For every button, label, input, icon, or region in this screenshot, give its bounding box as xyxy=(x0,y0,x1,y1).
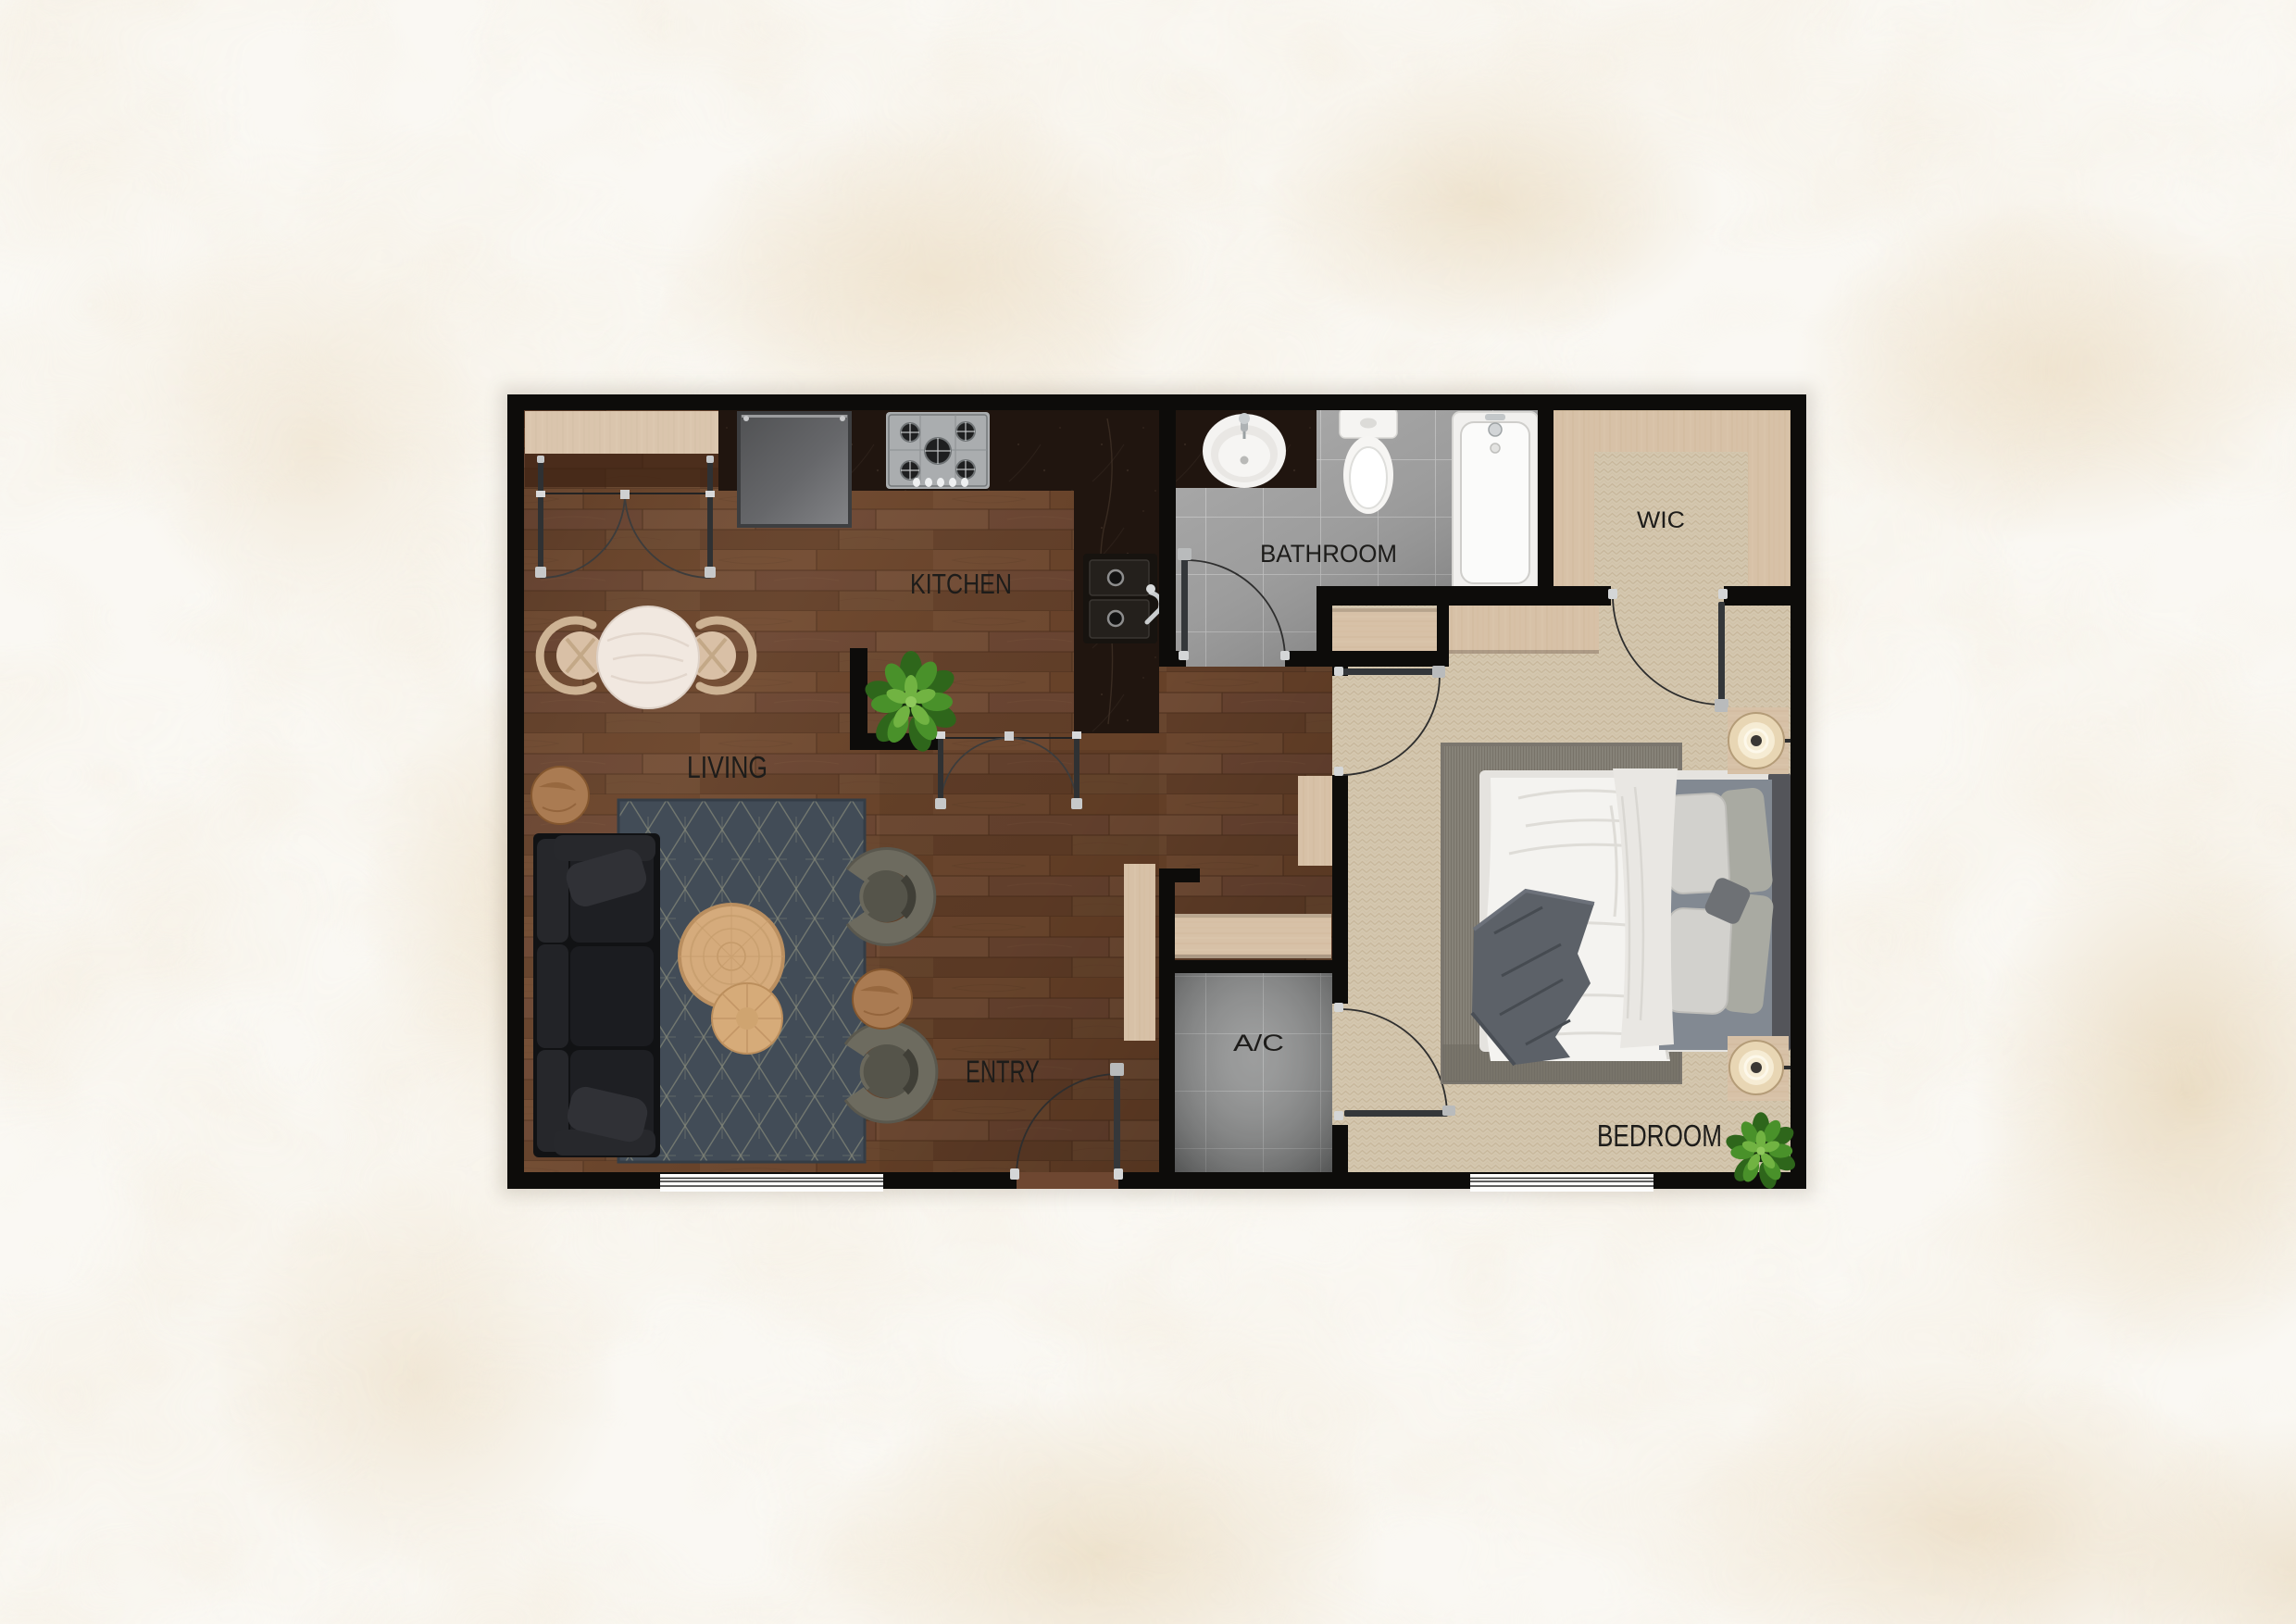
svg-text:BATHROOM: BATHROOM xyxy=(1260,540,1397,568)
svg-text:BEDROOM: BEDROOM xyxy=(1597,1118,1722,1153)
svg-text:WIC: WIC xyxy=(1637,507,1685,533)
svg-text:KITCHEN: KITCHEN xyxy=(910,568,1012,600)
svg-text:LIVING: LIVING xyxy=(687,750,767,784)
svg-text:ENTRY: ENTRY xyxy=(966,1055,1040,1090)
svg-text:A/C: A/C xyxy=(1233,1031,1284,1056)
